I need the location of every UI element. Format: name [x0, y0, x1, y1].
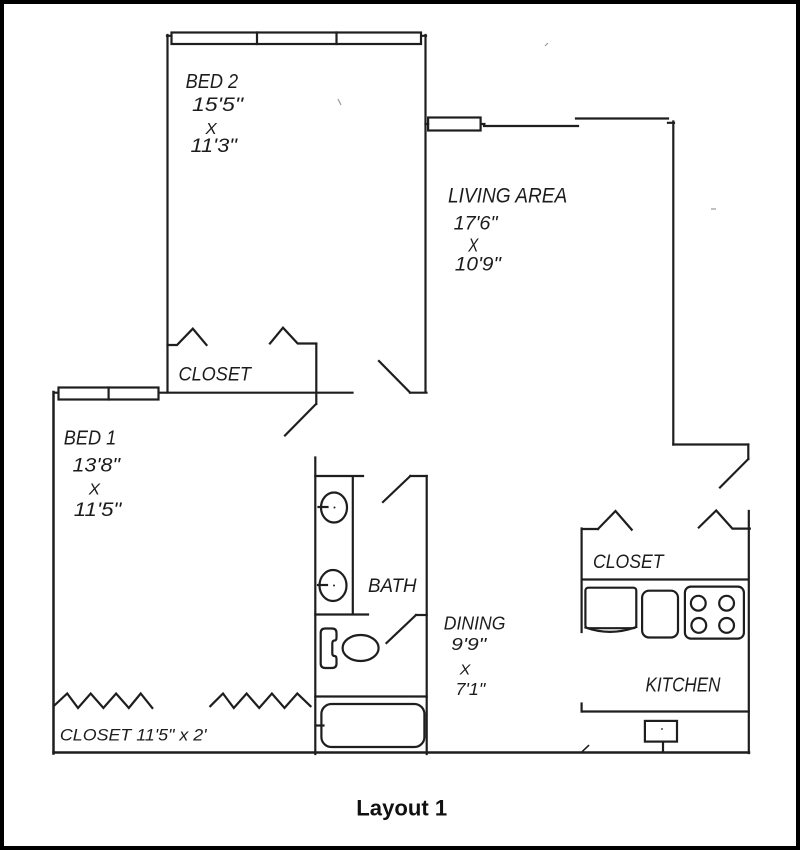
svg-text:X: X [459, 662, 472, 679]
svg-text:BED 1: BED 1 [64, 428, 117, 450]
svg-text:15'5": 15'5" [192, 95, 245, 116]
svg-text:13'8": 13'8" [73, 456, 122, 477]
svg-text:CLOSET: CLOSET [593, 552, 665, 573]
svg-text:11'3": 11'3" [191, 136, 239, 157]
svg-text:BATH: BATH [368, 576, 417, 597]
svg-text:Layout 1: Layout 1 [356, 795, 447, 820]
svg-text:LIVING AREA: LIVING AREA [448, 185, 567, 208]
svg-text:BED 2: BED 2 [186, 71, 239, 93]
svg-text:X: X [467, 236, 479, 256]
svg-text:CLOSET: CLOSET [179, 365, 253, 386]
svg-text:CLOSET 11'5" x 2': CLOSET 11'5" x 2' [60, 726, 207, 745]
svg-text:9'9": 9'9" [451, 634, 487, 654]
svg-text:17'6": 17'6" [454, 214, 499, 235]
svg-text:DINING: DINING [444, 614, 506, 634]
svg-text:7'1": 7'1" [456, 679, 487, 699]
svg-text:KITCHEN: KITCHEN [646, 675, 721, 697]
svg-text:10'9": 10'9" [455, 255, 502, 276]
svg-text:X: X [88, 482, 102, 499]
svg-text:11'5": 11'5" [74, 500, 123, 521]
